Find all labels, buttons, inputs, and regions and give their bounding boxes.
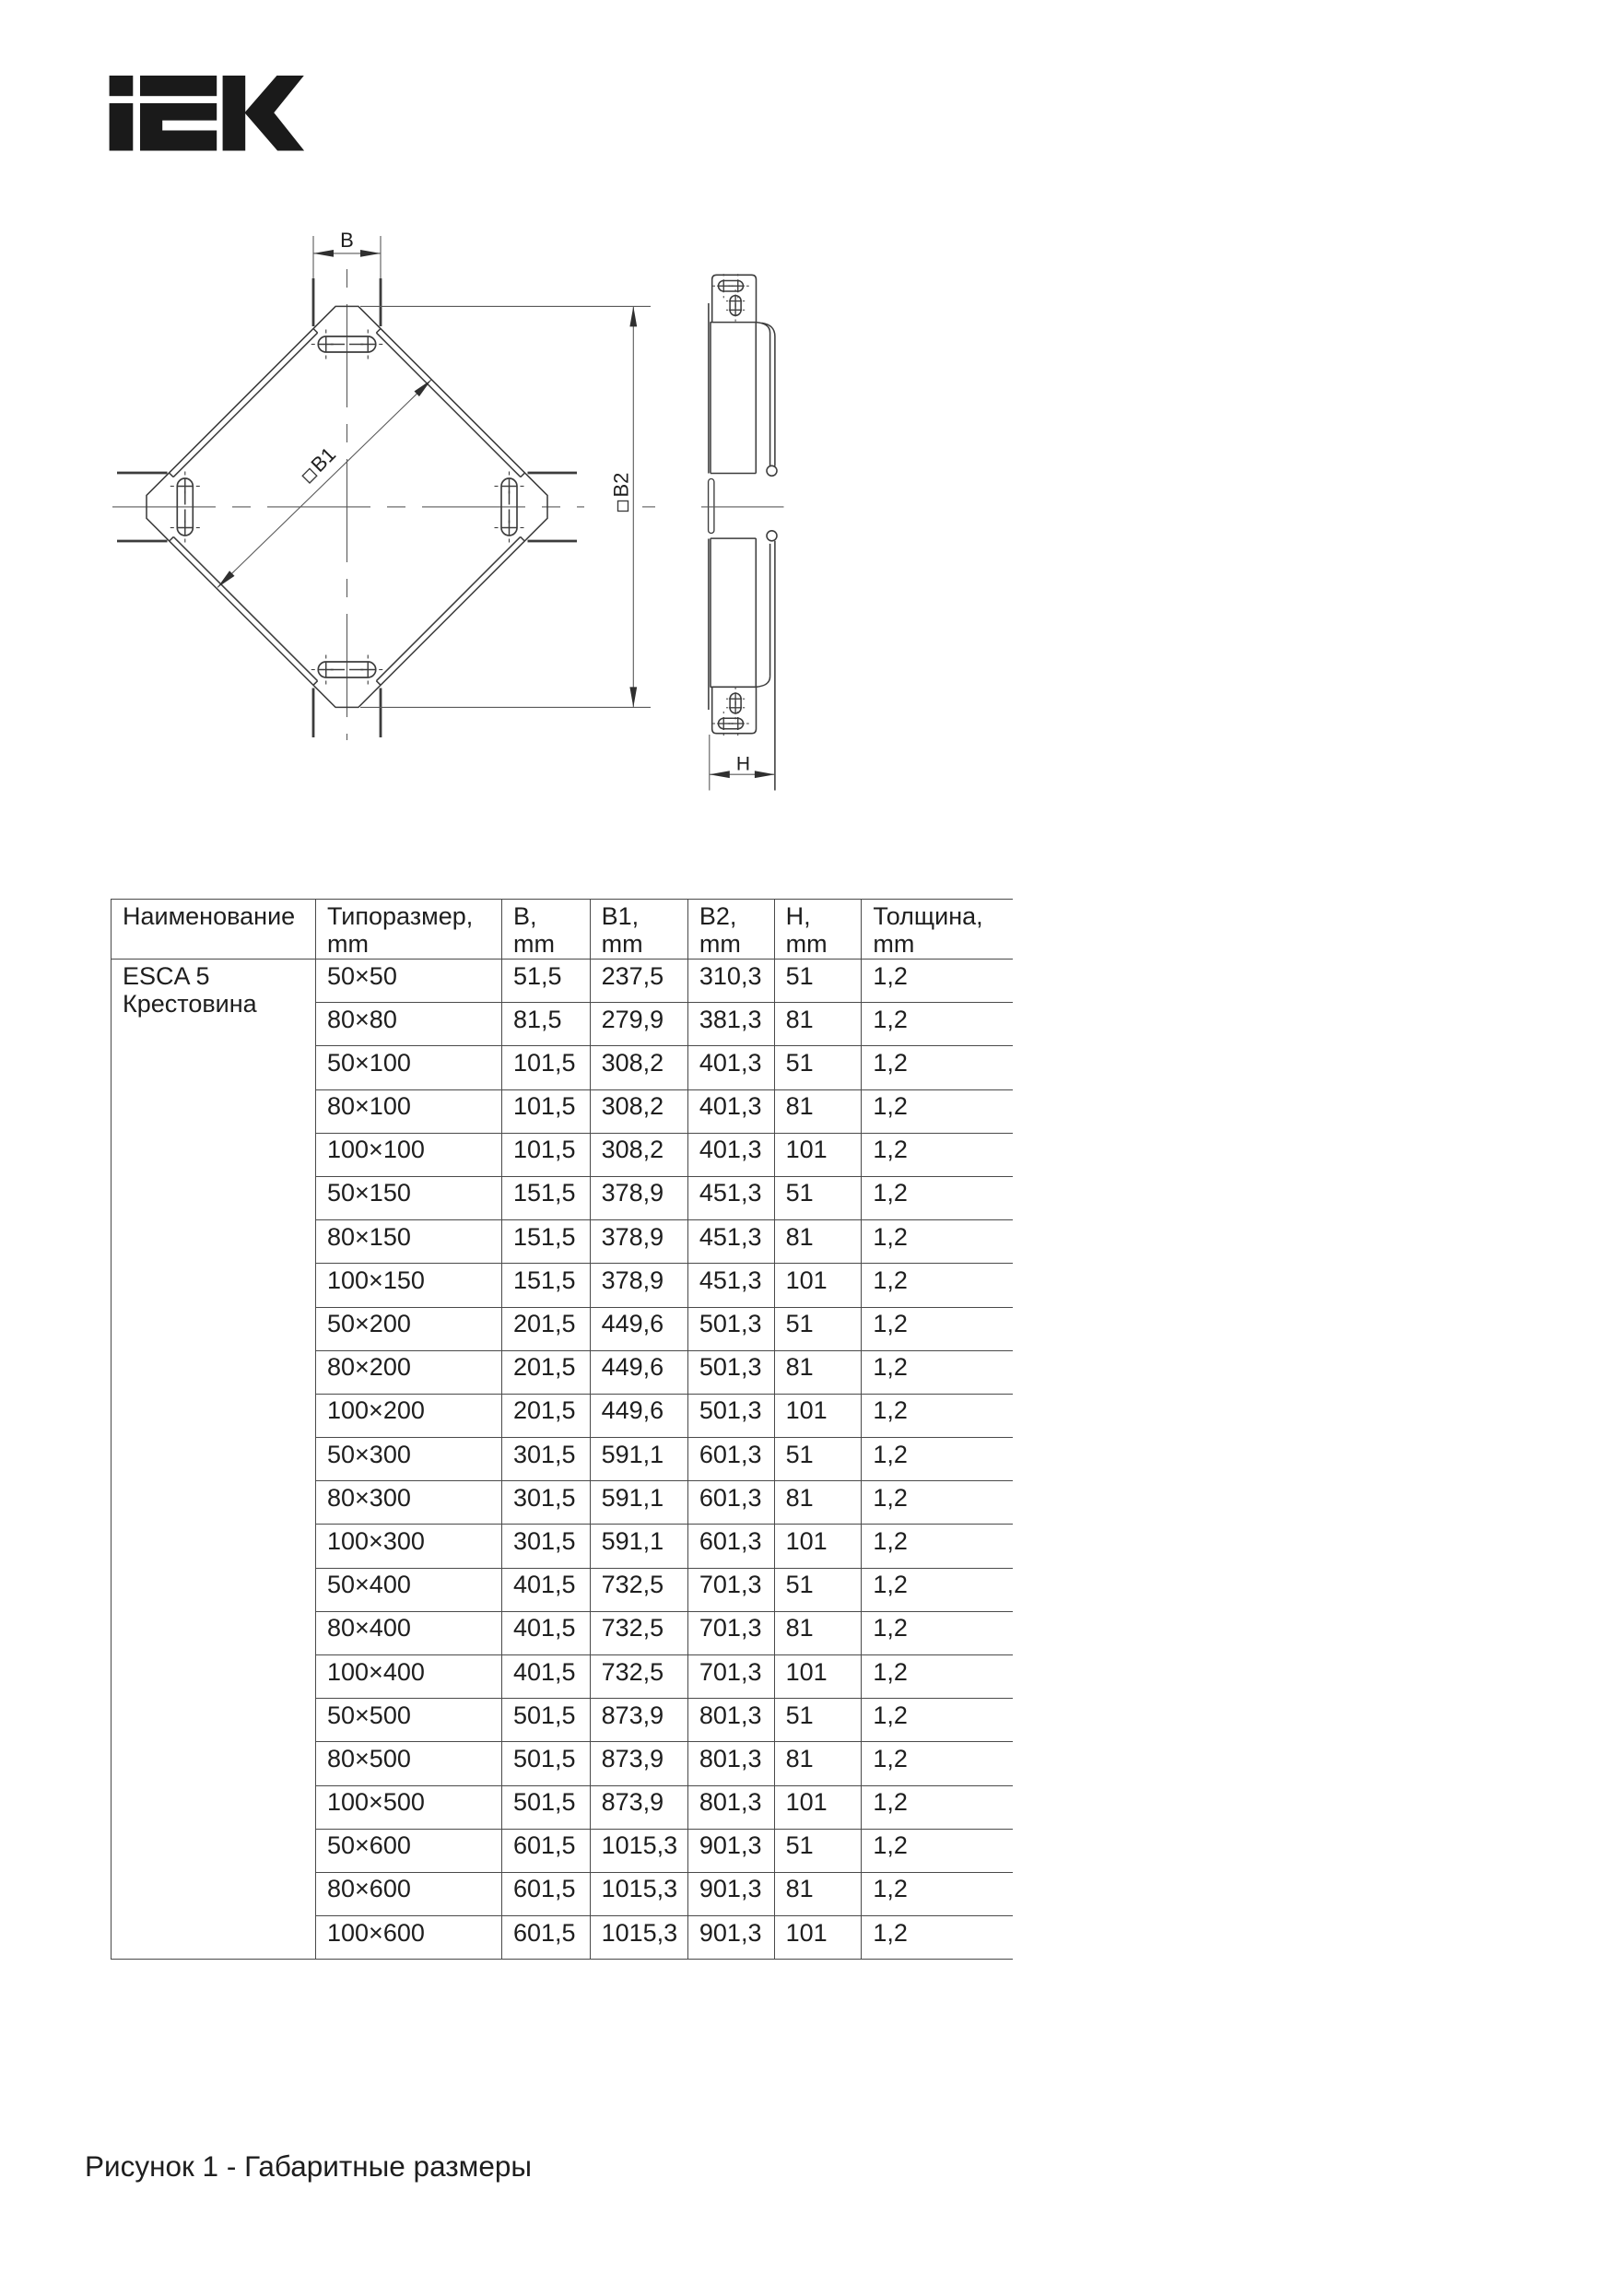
svg-text:B: B	[340, 229, 354, 252]
svg-text:B2: B2	[610, 473, 633, 498]
svg-text:H: H	[736, 754, 750, 775]
svg-text:B1: B1	[306, 442, 340, 477]
